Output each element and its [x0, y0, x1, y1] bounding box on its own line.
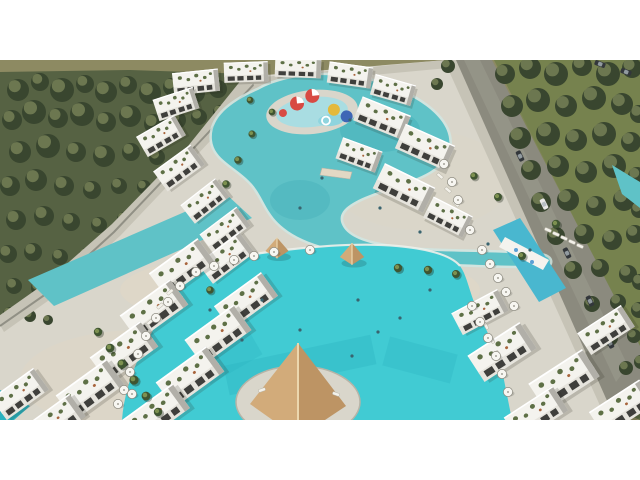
resort-scene [0, 60, 640, 420]
resort-aerial-render-photo [0, 60, 640, 420]
screenshot-canvas [0, 0, 640, 480]
